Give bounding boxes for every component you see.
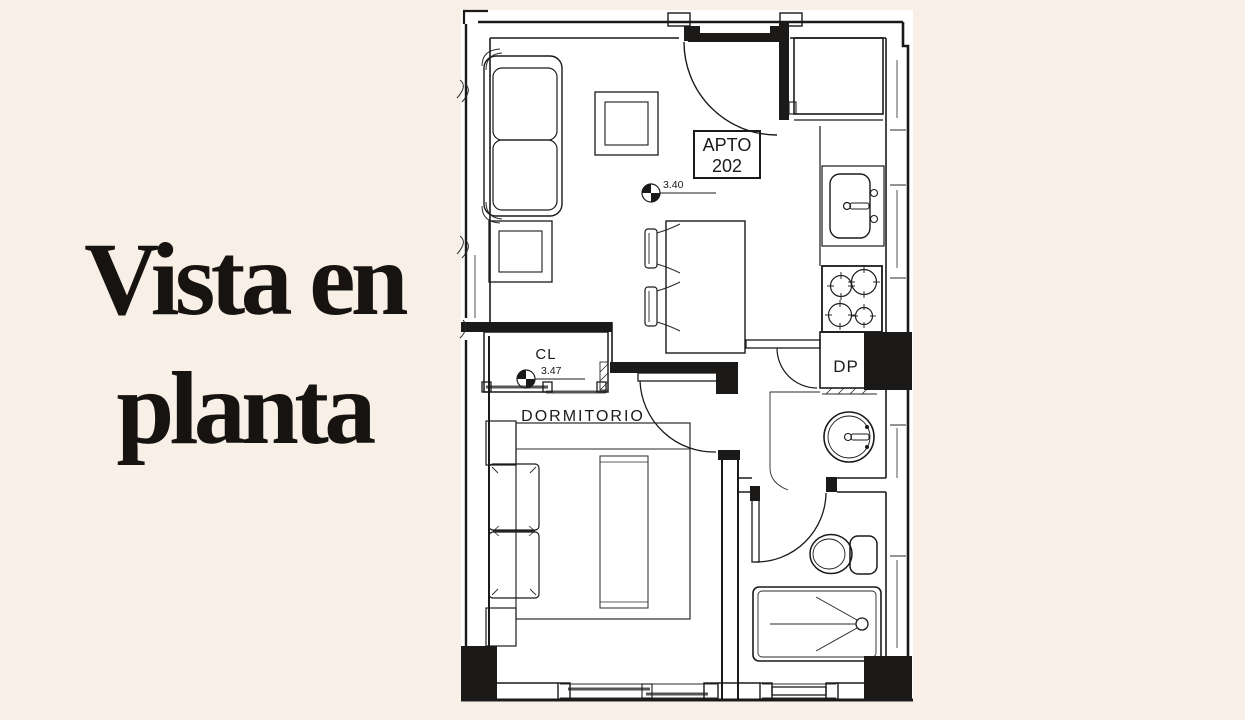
title-line-1: Vista en (38, 216, 450, 345)
duct-label: DP (833, 357, 859, 376)
column-bottom-right (864, 656, 912, 700)
floor-plan: 3.40 APTO 202 (450, 0, 925, 720)
level-value-closet: 3.47 (541, 365, 562, 377)
unit-label-line1: APTO (703, 135, 752, 155)
unit-label-line2: 202 (712, 156, 742, 176)
closet-label: CL (535, 346, 556, 363)
column-mid-right (864, 332, 912, 390)
poster-canvas: Vista en planta (0, 0, 1245, 720)
living-bedroom-wall (461, 322, 612, 332)
page-title: Vista en planta (38, 216, 450, 474)
level-value-living: 3.40 (663, 179, 684, 191)
column-bottom-left (461, 646, 497, 700)
title-line-2: planta (38, 345, 450, 474)
bedroom-door-wall (610, 362, 718, 373)
